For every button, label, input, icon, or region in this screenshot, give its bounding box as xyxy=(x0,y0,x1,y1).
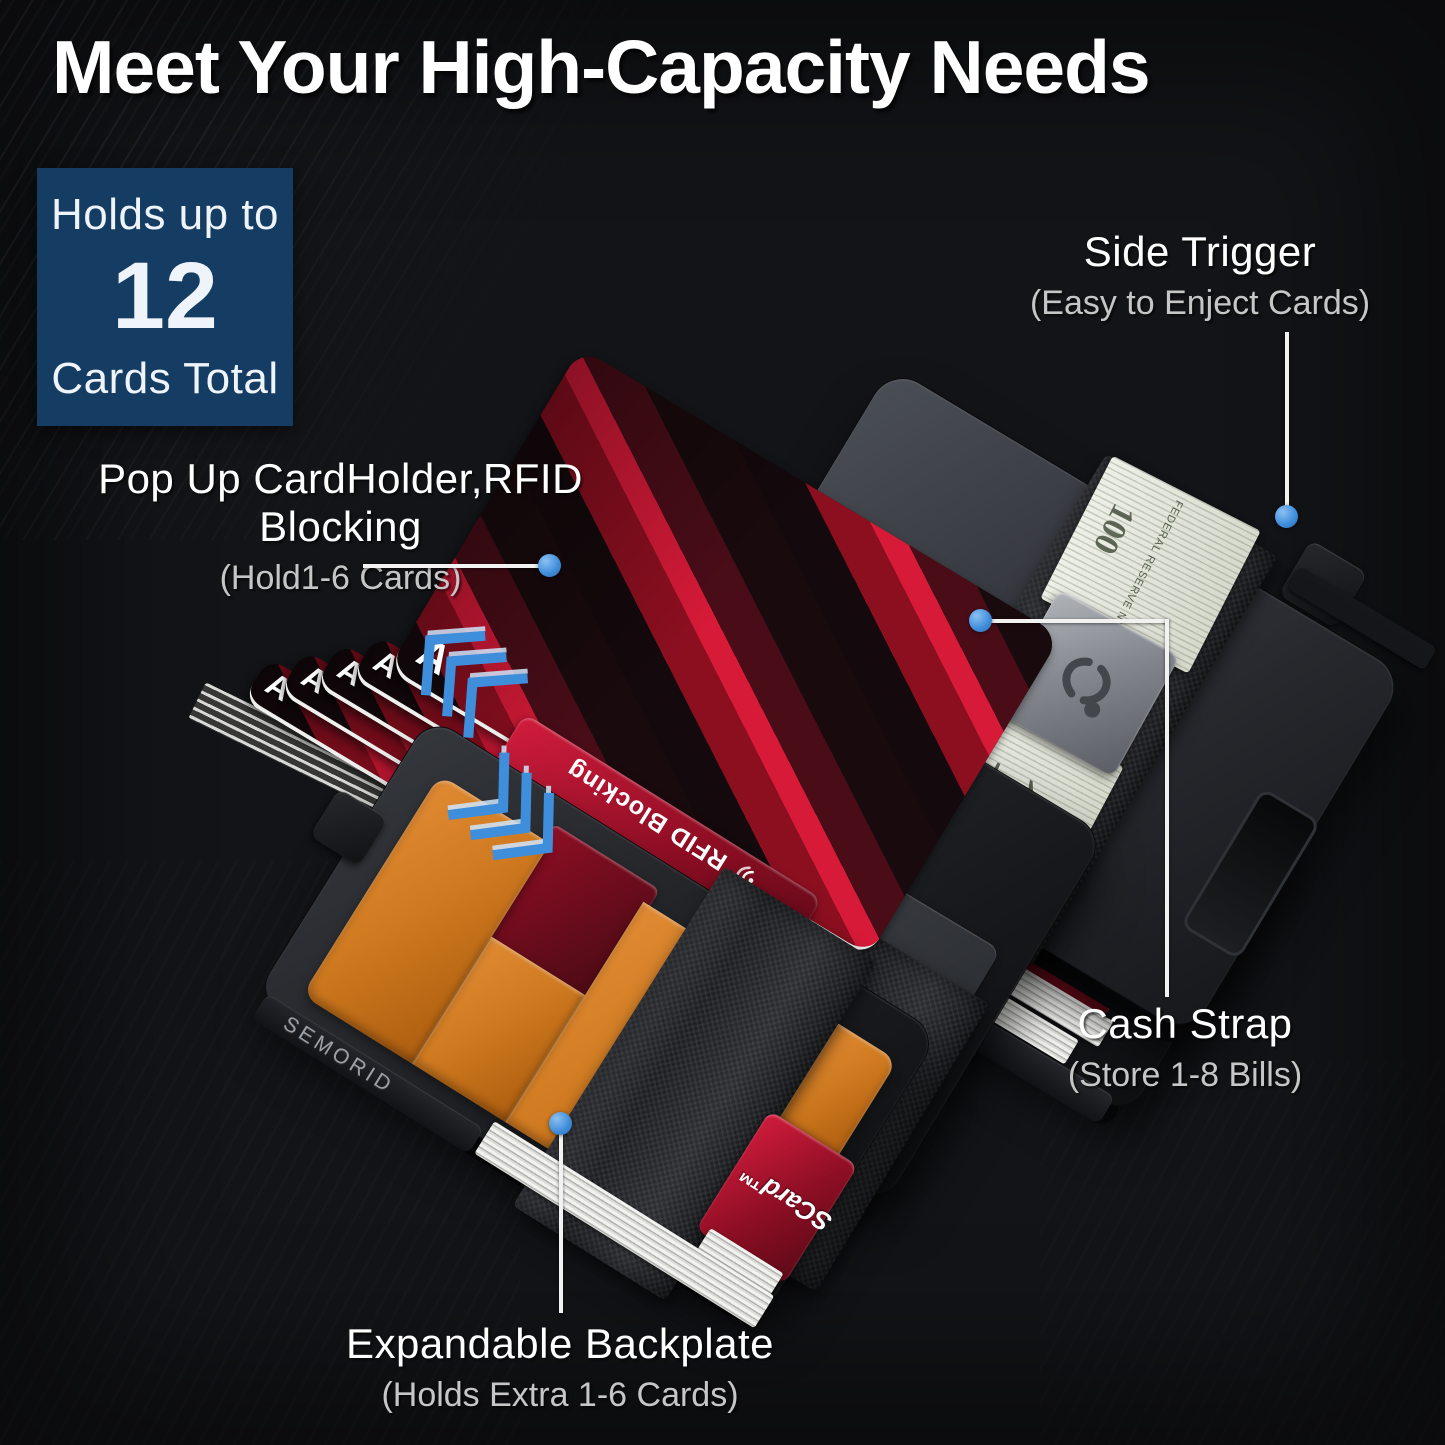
callout-backplate-detail: (Holds Extra 1-6 Cards) xyxy=(250,1376,870,1415)
page-title: Meet Your High-Capacity Needs xyxy=(52,24,1150,110)
callout-dot-cash xyxy=(969,609,992,632)
callout-popup-detail: (Hold1-6 Cards) xyxy=(18,559,663,598)
callout-dot-popup xyxy=(538,554,561,577)
callout-popup-label: Pop Up CardHolder,RFID Blocking xyxy=(18,455,663,551)
capacity-badge-line2: Cards Total xyxy=(51,354,278,404)
capacity-badge: Holds up to 12 Cards Total xyxy=(37,168,293,426)
bill-denomination-small: 100 xyxy=(1085,497,1142,560)
callout-line-cash-horizontal xyxy=(988,619,1169,623)
callout-line-popup xyxy=(363,564,541,568)
callout-cash-strap-detail: (Store 1-8 Bills) xyxy=(1025,1056,1345,1095)
callout-dot-backplate xyxy=(549,1112,572,1135)
red-card-brand-text: SCard™ xyxy=(734,1157,837,1238)
callout-line-side-trigger xyxy=(1285,332,1289,507)
callout-backplate-label: Expandable Backplate xyxy=(250,1320,870,1368)
capacity-badge-line1: Holds up to xyxy=(51,190,279,240)
callout-side-trigger-detail: (Easy to Enject Cards) xyxy=(985,284,1415,323)
callout-cash-strap-label: Cash Strap xyxy=(1025,1000,1345,1048)
callout-side-trigger: Side Trigger (Easy to Enject Cards) xyxy=(985,228,1415,323)
callout-backplate: Expandable Backplate (Holds Extra 1-6 Ca… xyxy=(250,1320,870,1415)
callout-cash-strap: Cash Strap (Store 1-8 Bills) xyxy=(1025,1000,1345,1095)
capacity-badge-number: 12 xyxy=(112,254,218,340)
callout-dot-side-trigger xyxy=(1275,505,1298,528)
callout-popup: Pop Up CardHolder,RFID Blocking (Hold1-6… xyxy=(18,455,663,598)
callout-line-backplate xyxy=(559,1133,563,1313)
product-marketing-image: SCard™ SEMORID 100 FEDERAL RESERVE NOTE xyxy=(0,0,1445,1445)
callout-line-cash-vertical xyxy=(1165,619,1169,997)
callout-side-trigger-label: Side Trigger xyxy=(985,228,1415,276)
